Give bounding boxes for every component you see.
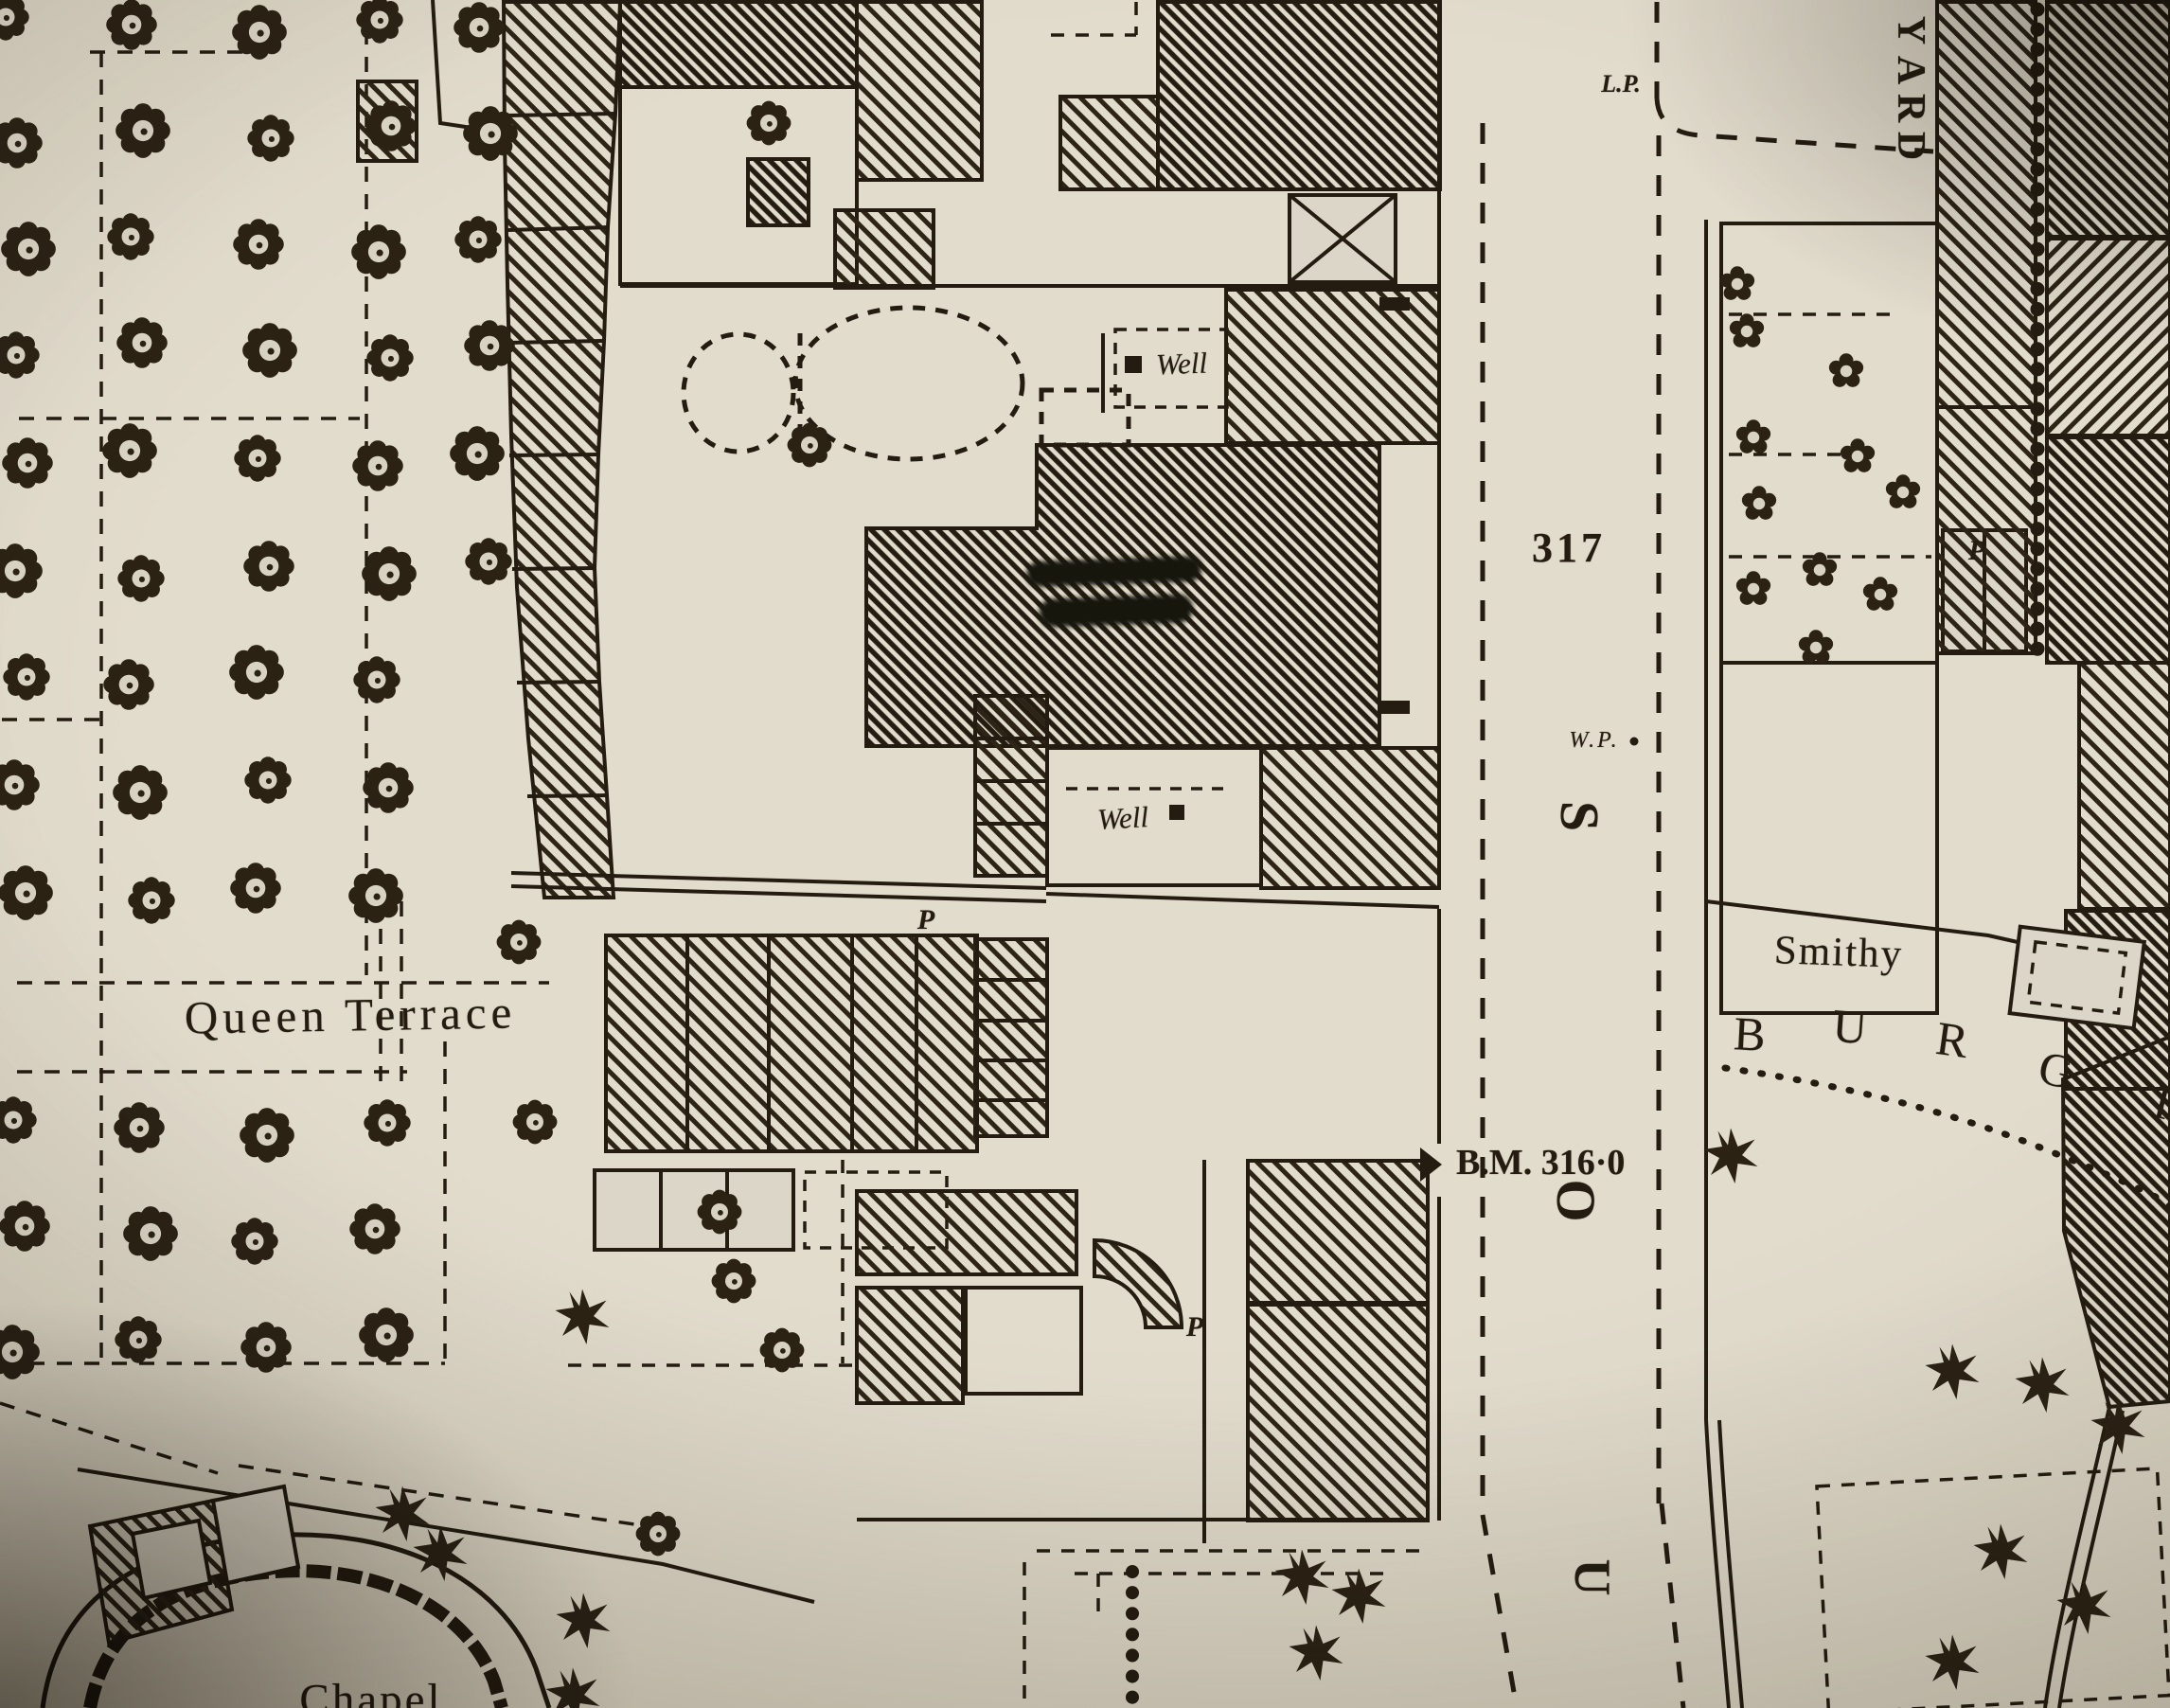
yard-letter-r: R — [1891, 94, 1930, 122]
spiky-tree — [1704, 1129, 1758, 1184]
pump-marker-3: P — [1968, 537, 1985, 565]
orchard-tree — [363, 762, 414, 813]
water-pump-label: W.P. — [1569, 729, 1619, 752]
orchard-tree — [229, 645, 284, 700]
garden-ovals — [684, 308, 1129, 459]
orchard-tree — [243, 541, 294, 592]
orchard-tree — [107, 213, 153, 259]
map-scan: Queen Terrace Well Well 317 L.P. W.P. B.… — [0, 0, 2170, 1708]
spiky-tree — [1275, 1550, 1329, 1606]
garden-shrub — [1863, 577, 1897, 611]
orchard-tree — [366, 334, 413, 381]
orchard-tree — [0, 759, 40, 810]
orchard-tree — [114, 1102, 165, 1153]
yard-letter-y: Y — [1891, 16, 1930, 44]
spiky-tree — [1974, 1524, 2028, 1580]
garden-shrub — [1841, 438, 1875, 472]
spiky-tree — [557, 1593, 611, 1649]
yard-tree — [497, 920, 542, 965]
yard-tree — [712, 1259, 756, 1304]
spiky-tree — [1926, 1344, 1980, 1400]
yard-tree — [760, 1328, 805, 1373]
garden-shrub — [1720, 266, 1754, 300]
orchard-tree — [454, 2, 505, 53]
orchard-tree — [349, 1203, 400, 1254]
orchard-tree — [230, 863, 281, 914]
queen-terrace-label: Queen Terrace — [184, 988, 516, 1041]
orchard-tree — [0, 331, 40, 378]
orchard-tree — [0, 1325, 40, 1379]
yard-tree — [636, 1512, 681, 1557]
orchard-tree — [234, 435, 280, 481]
benchmark-label: B.M. 316·0 — [1456, 1145, 1625, 1181]
orchard-tree — [365, 100, 417, 151]
upper-well-label: Well — [1155, 348, 1207, 380]
orchard-tree — [231, 1218, 277, 1264]
yard-letter-d: D — [1891, 132, 1930, 160]
burg-letter-u: U — [1831, 1002, 1869, 1051]
orchard-tree — [128, 877, 174, 923]
orchard-tree — [359, 1308, 414, 1362]
smithy-label: Smithy — [1773, 930, 1904, 975]
orchard-tree — [113, 765, 168, 820]
map-linework — [0, 0, 2170, 1708]
orchard-tree — [356, 0, 402, 44]
spiky-tree — [376, 1486, 430, 1542]
pump-marker-2: P — [1186, 1313, 1203, 1342]
orchard-tree — [232, 5, 287, 60]
spiky-tree — [1332, 1569, 1386, 1625]
main-street — [1420, 2, 1933, 1708]
stepped-outbuildings — [975, 696, 1047, 1136]
orchard-tree — [116, 317, 168, 368]
orchard-tree — [0, 117, 43, 169]
lamp-post-label: L.P. — [1601, 72, 1640, 97]
garden-shrub — [1736, 419, 1770, 454]
orchard-tree — [1, 222, 56, 276]
spiky-tree — [556, 1290, 610, 1345]
orchard-tree — [115, 1316, 161, 1362]
street-letter-o: O — [1548, 1179, 1603, 1221]
orchard-tree — [116, 103, 170, 158]
yard-tree — [747, 101, 792, 146]
orchard-tree — [364, 1099, 410, 1146]
orchard-tree — [353, 656, 400, 703]
orchard-tree — [117, 555, 164, 601]
orchard-tree — [0, 1201, 50, 1252]
orchard-tree — [244, 756, 291, 803]
garden-shrub — [1829, 353, 1863, 387]
orchard-tree — [348, 868, 403, 923]
orchard-tree — [233, 219, 284, 270]
orchard-tree — [465, 538, 511, 584]
burg-letter-r: R — [1933, 1014, 1971, 1065]
chapel-area — [43, 1469, 814, 1708]
orchard-tree — [450, 426, 505, 481]
vegetation — [0, 0, 2144, 1708]
lower-well-label: Well — [1096, 802, 1149, 834]
orchard-tree — [0, 543, 43, 598]
orchard-tree — [240, 1322, 292, 1373]
parcel-number-label: 317 — [1532, 527, 1606, 569]
orchard-tree — [0, 1096, 37, 1143]
orchard-tree — [240, 1108, 294, 1163]
orchard-tree — [362, 546, 417, 601]
yard-letter-a: A — [1891, 56, 1930, 84]
spiky-tree — [2016, 1358, 2070, 1414]
top-buildings — [620, 2, 1440, 443]
orchard-tree — [352, 440, 403, 491]
yard-tree — [698, 1190, 742, 1235]
garden-shrub — [1736, 571, 1770, 605]
street-letter-s: S — [1552, 801, 1607, 831]
orchard-tree — [463, 106, 518, 161]
orchard-tree — [3, 653, 49, 700]
yard-tree — [788, 423, 832, 468]
orchard-tree — [242, 323, 297, 378]
garden-shrub — [1799, 630, 1833, 664]
spiky-tree — [1926, 1635, 1980, 1691]
garden-shrub — [1730, 313, 1764, 347]
orchard-tree — [0, 865, 53, 920]
bottom-central-buildings — [857, 1160, 1430, 1708]
orchard-tree — [464, 320, 515, 371]
chapel-label: Chapel — [299, 1679, 442, 1708]
burg-letter-b: B — [1733, 1009, 1767, 1059]
orchard-tree — [454, 216, 501, 262]
spiky-tree — [1290, 1626, 1343, 1681]
spiky-tree — [414, 1526, 468, 1582]
orchard-tree — [2, 437, 53, 489]
orchard-tree — [0, 0, 29, 41]
map-drawing — [0, 0, 2170, 1708]
orchard-tree — [351, 224, 406, 279]
orchard-tree — [102, 423, 157, 478]
orchard-tree — [247, 115, 293, 161]
street-letter-u: U — [1567, 1559, 1618, 1596]
orchard-tree — [106, 0, 157, 50]
garden-shrub — [1742, 486, 1776, 520]
spiky-tree — [546, 1668, 600, 1708]
pump-marker-1: P — [917, 906, 934, 934]
orchard-tree — [103, 659, 154, 710]
orchard-tree — [123, 1206, 178, 1261]
garden-shrub — [1886, 474, 1920, 508]
yard-tree — [513, 1100, 558, 1145]
